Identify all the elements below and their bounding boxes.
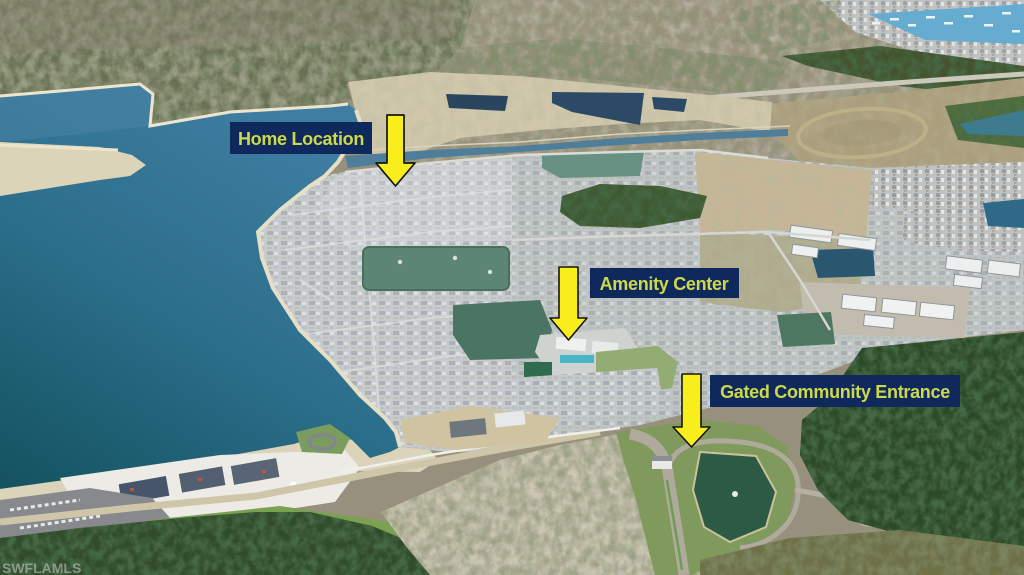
svg-text:Gated Community Entrance: Gated Community Entrance <box>720 382 950 402</box>
svg-text:Amenity Center: Amenity Center <box>600 274 729 294</box>
svg-text:Home Location: Home Location <box>238 129 364 149</box>
svg-text:SWFLAMLS: SWFLAMLS <box>2 560 81 575</box>
